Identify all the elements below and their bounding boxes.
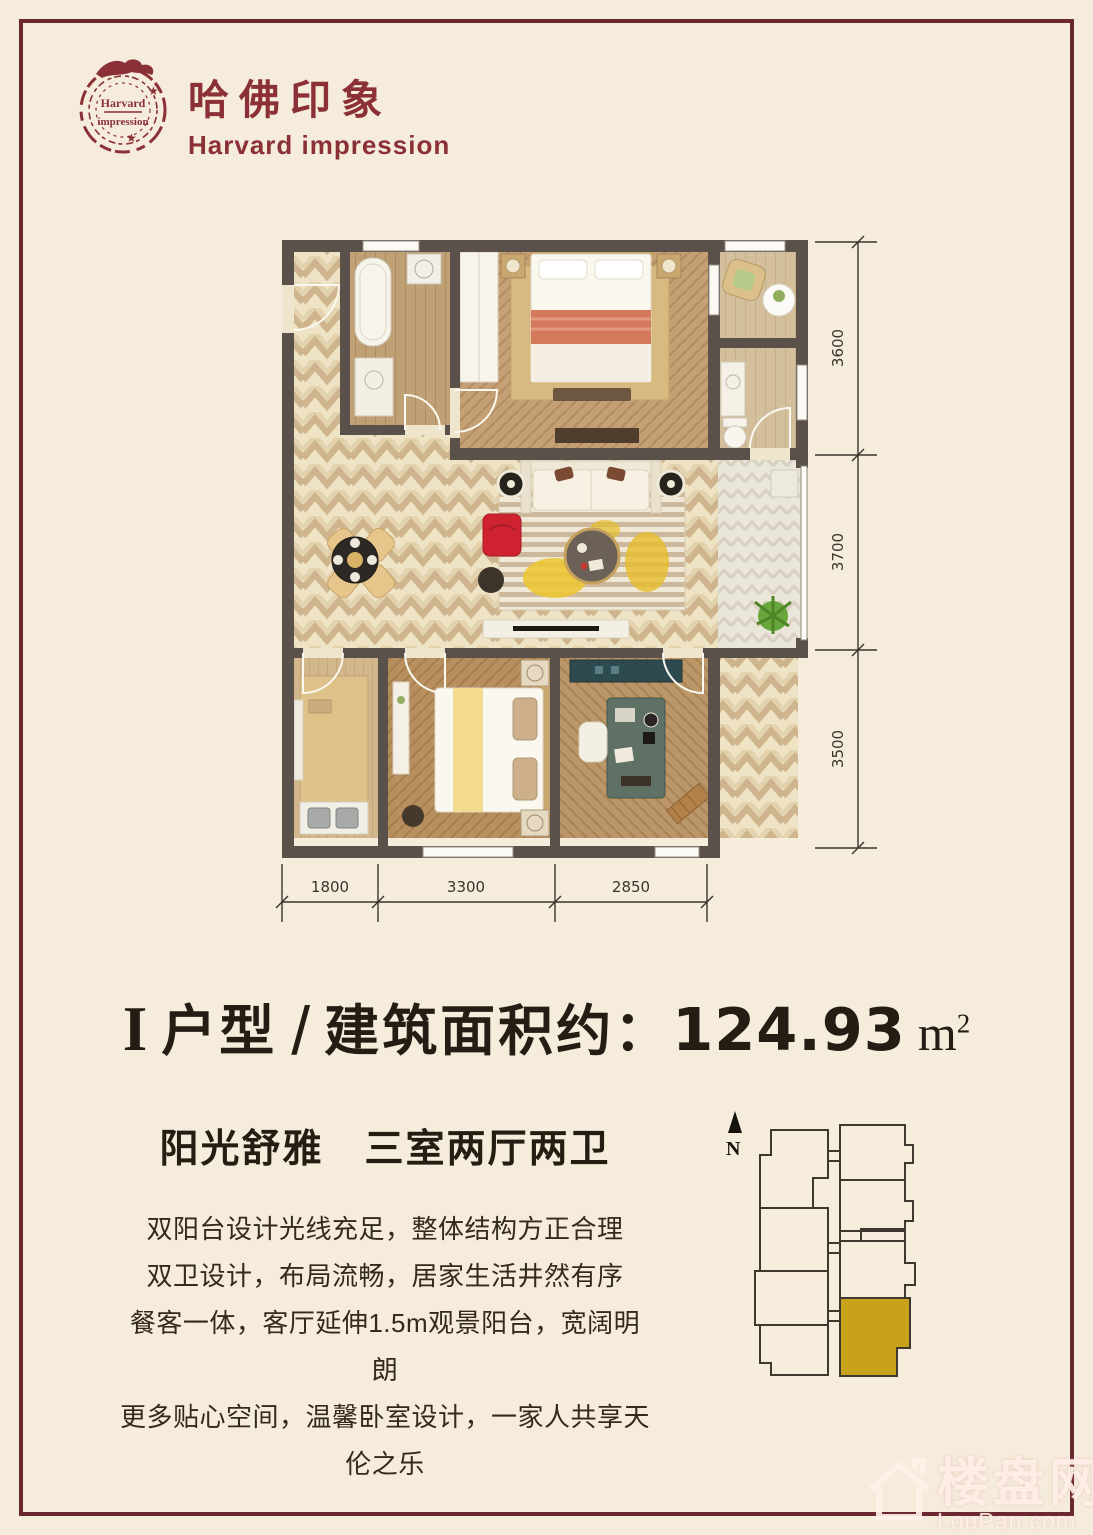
lamp [506,259,520,273]
bed-runner [531,310,651,344]
checkerboard [643,732,655,744]
watermark-en: LouPan.com [937,1508,1093,1535]
balcony-box [771,470,798,497]
building-key-plan: N [713,1103,1013,1428]
speaker-cone [667,480,675,488]
bed-blanket [531,344,651,382]
unit-title: I户型/建筑面积约：124.93m2 [0,986,1093,1070]
area-value: 124.93 [672,995,906,1064]
bed-bench [553,388,631,401]
house-icon [859,1449,937,1527]
pillow [595,260,643,279]
floor-plan: 3600 3700 3500 1800 3300 2850 [255,230,895,935]
toilet-bowl [724,426,746,448]
coffee-table [565,529,619,583]
description-line: 餐客一体，客厅延伸1.5m观景阳台，宽阔明朗 [120,1300,650,1394]
window [423,847,513,857]
highlighted-unit [840,1298,910,1376]
description-line: 双卫设计，布局流畅，居家生活井然有序 [120,1253,650,1300]
dim-label-1800: 1800 [311,878,349,896]
pillow [539,260,587,279]
window [709,265,719,315]
dim-label-3300: 3300 [447,878,485,896]
description-line: 更多贴心空间，温馨卧室设计，一家人共享天伦之乐 [120,1394,650,1488]
nightstand [521,810,549,836]
pillow [513,698,537,740]
rug-accent [625,532,669,592]
potted-plant [773,290,785,302]
description-line: 双阳台设计光线充足，整体结构方正合理 [120,1206,650,1253]
door-gap-entry [282,285,294,333]
stamp-star-icon: ★ [148,84,159,98]
kitchen-counter [300,676,368,802]
brand-name-cn: 哈佛印象 [188,66,450,126]
pillow [513,758,537,800]
area-label: 建筑面积约： [324,1000,672,1062]
papers [614,747,634,763]
brand-name-en: Harvard impression [188,130,450,161]
keyboard-tray [621,776,651,786]
washing-machine [407,254,441,284]
dim-label-3700: 3700 [829,533,847,571]
kitchen-cabinet [294,700,303,780]
television [513,626,599,631]
unit-letter: I [123,994,148,1064]
pouf [402,805,424,827]
watermark-cn: 楼盘网 [937,1441,1093,1516]
sink-basin [336,808,358,828]
speaker-cone [507,480,515,488]
watermark-text: 楼盘网 LouPan.com [937,1441,1093,1535]
unit-type-label: 户型 [161,1000,277,1062]
cup [644,713,658,727]
door-gap [405,648,445,658]
plate [350,572,360,582]
side-cabinet [393,682,409,774]
window [725,241,785,251]
brand-stamp-logo: Harvard impression ★ ★ [68,50,178,165]
window [655,847,699,857]
nightstand [521,660,549,686]
plant-decor [397,696,405,704]
cabinet-decor [595,666,603,674]
north-arrow-icon [728,1111,742,1133]
brand-names: 哈佛印象 Harvard impression [188,66,450,161]
table-decor [581,563,588,570]
flyer-page: Harvard impression ★ ★ 哈佛印象 Harvard impr… [0,0,1093,1535]
bedroom-dresser [555,428,639,443]
balcony-rail [801,466,807,640]
area-unit: m2 [918,1005,970,1061]
door-gap [750,448,790,460]
door-gap [663,648,703,658]
window [797,365,807,420]
north-label: N [726,1138,741,1160]
dim-label-2850: 2850 [612,878,650,896]
stamp-star-icon: ★ [126,131,137,145]
door-gap [450,388,460,438]
laptop [615,708,635,722]
plate [350,538,360,548]
stamp-text-bottom: impression [97,116,148,128]
door-gap [303,648,343,658]
description-block: 双阳台设计光线充足，整体结构方正合理 双卫设计，布局流畅，居家生活井然有序 餐客… [120,1206,650,1488]
desk-chair [579,722,607,762]
accent-armchair [483,514,521,556]
cabinet-decor [611,666,619,674]
watermark: 楼盘网 LouPan.com [859,1441,1093,1535]
plate [333,555,343,565]
dining-centerpiece [347,552,363,568]
table-decor [577,543,587,553]
subtitle: 阳光舒雅 三室两厅两卫 [120,1118,650,1174]
cutting-board [309,700,331,713]
lamp [662,259,676,273]
window [363,241,419,251]
bed-runner [453,688,483,812]
stamp-text-top: Harvard [101,96,146,110]
sink-basin [308,808,330,828]
marketing-copy: 阳光舒雅 三室两厅两卫 双阳台设计光线充足，整体结构方正合理 双卫设计，布局流畅… [120,1118,650,1488]
plate [367,555,377,565]
ottoman [478,567,504,593]
dim-label-3600: 3600 [829,329,847,367]
dim-label-3500: 3500 [829,730,847,768]
title-slash: / [291,993,310,1069]
bathroom-vanity [355,358,393,416]
